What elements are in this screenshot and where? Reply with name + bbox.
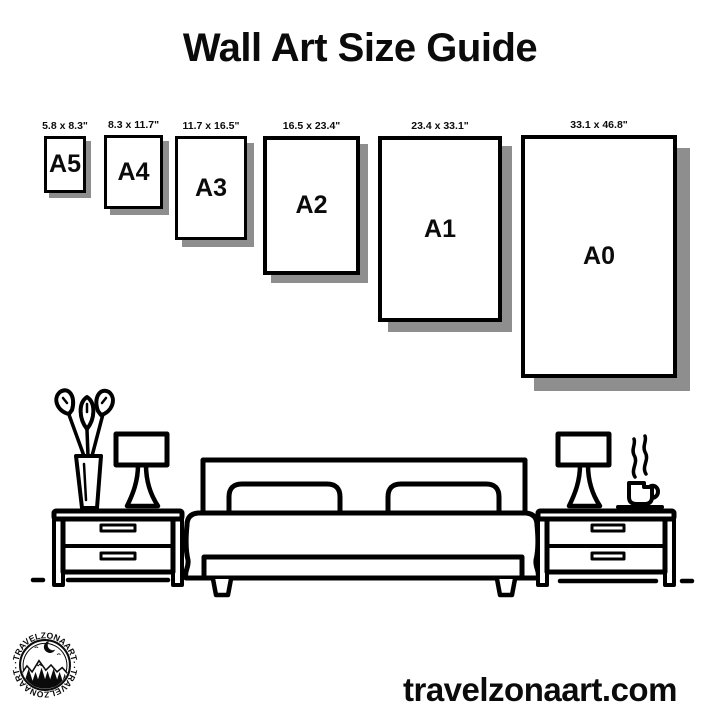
brand-logo: ·TRAVELZONAART· ·TRAVELZONAART·: [2, 622, 88, 708]
size-box-a0: A0: [521, 135, 677, 378]
size-dimensions-a3: 11.7 x 16.5": [183, 120, 240, 132]
lamp-left-icon: [116, 434, 167, 506]
size-dimensions-a5: 5.8 x 8.3": [42, 120, 88, 132]
size-name-a2: A2: [296, 191, 328, 220]
size-box-a2: A2: [263, 136, 360, 275]
page-title: Wall Art Size Guide: [0, 26, 720, 71]
wall-art-size-guide-page: Wall Art Size Guide 5.8 x 8.3"A58.3 x 11…: [0, 0, 720, 720]
bedroom-scene: [0, 380, 720, 605]
size-box-a4: A4: [104, 135, 163, 209]
size-name-a1: A1: [424, 215, 456, 244]
size-dimensions-a0: 33.1 x 46.8": [570, 119, 628, 131]
size-name-a0: A0: [583, 242, 615, 271]
size-box-a5: A5: [44, 136, 86, 193]
size-dimensions-a2: 16.5 x 23.4": [283, 120, 341, 132]
nightstand-left: [54, 511, 182, 585]
size-box-a1: A1: [378, 136, 502, 322]
coffee-cup-icon: [618, 436, 662, 507]
size-dimensions-a4: 8.3 x 11.7": [108, 119, 159, 131]
lamp-right-icon: [558, 434, 609, 506]
size-name-a5: A5: [49, 150, 81, 179]
size-box-a3: A3: [175, 136, 247, 240]
nightstand-right: [538, 511, 674, 585]
bed-icon: [186, 460, 539, 595]
website-url: travelzonaart.com: [403, 671, 677, 709]
plant-icon: [56, 390, 113, 508]
size-dimensions-a1: 23.4 x 33.1": [411, 120, 469, 132]
size-name-a3: A3: [195, 174, 227, 203]
size-name-a4: A4: [118, 158, 150, 187]
